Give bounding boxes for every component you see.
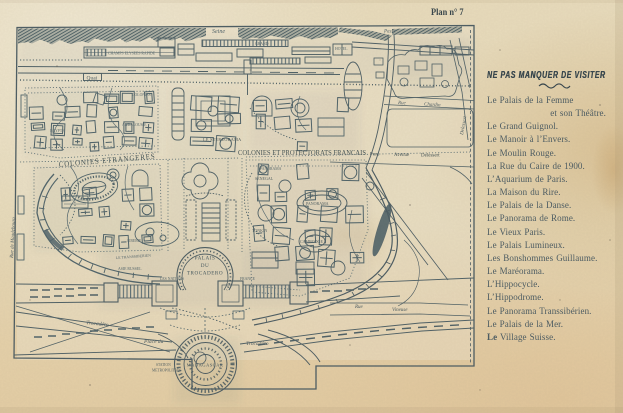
svg-text:PANORAMA: PANORAMA [260,167,282,171]
svg-text:Passy: Passy [383,30,396,35]
svg-text:HOTEL: HOTEL [335,47,348,51]
svg-text:SIBERIE: SIBERIE [127,239,142,243]
svg-text:FRANCE: FRANCE [240,277,256,281]
svg-text:COLONIES: COLONIES [132,93,151,97]
svg-text:Rue: Rue [354,305,364,310]
svg-text:Seine: Seine [212,29,225,35]
svg-text:Trocadéro: Trocadéro [246,341,269,347]
svg-text:LES NATIONS: LES NATIONS [160,277,184,281]
svg-text:Rue de Magdebourg: Rue de Magdebourg [10,217,17,259]
svg-text:Avenue: Avenue [394,153,410,158]
svg-text:Place du: Place du [143,339,164,345]
svg-text:Chardin: Chardin [424,103,441,109]
svg-text:DU: DU [201,263,210,269]
svg-text:CHAMPS ELYSEES RAPIDE: CHAMPS ELYSEES RAPIDE [108,52,156,56]
svg-text:STATION: STATION [156,363,171,367]
svg-text:GRAND: GRAND [255,42,269,46]
svg-text:CAMBODGE: CAMBODGE [300,239,323,244]
svg-text:MADAGASCAR: MADAGASCAR [187,363,224,368]
svg-text:PANORAMA: PANORAMA [306,201,329,206]
svg-text:TROCADERO: TROCADERO [187,271,223,277]
svg-text:Vineuse: Vineuse [392,308,408,313]
svg-text:SENEGAL: SENEGAL [255,176,274,181]
svg-text:METROPOLITAIN: METROPOLITAIN [152,369,181,373]
svg-text:LE STEREORAMA: LE STEREORAMA [203,137,241,142]
svg-text:Delessert: Delessert [421,154,440,159]
svg-text:ASIE RUSSEL: ASIE RUSSEL [118,267,142,271]
svg-text:ANDALOUSIE: ANDALOUSIE [122,123,147,127]
svg-text:Rue: Rue [397,101,407,106]
svg-text:PALAIS: PALAIS [195,256,216,262]
svg-text:Quai: Quai [87,76,98,82]
svg-text:COLONIES ET PROTECTORATS FRANC: COLONIES ET PROTECTORATS FRANCAIS [238,149,366,157]
svg-text:EGYPTE: EGYPTE [50,129,65,133]
